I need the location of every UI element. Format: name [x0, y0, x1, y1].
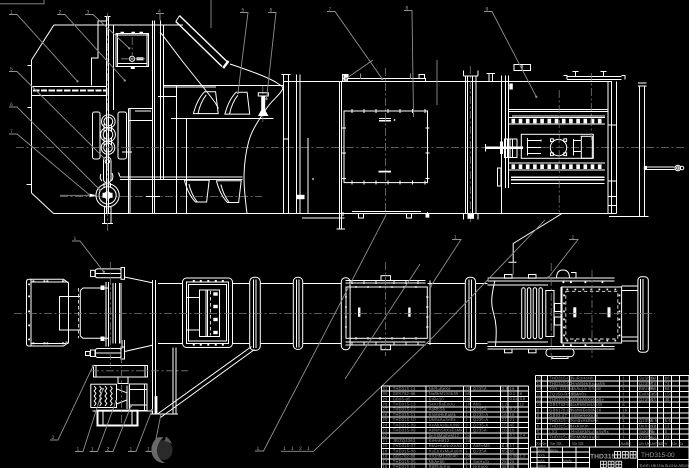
svg-text:HrKmXr: HrKmXr: [473, 464, 489, 468]
svg-text:RbUeKaNnXnA8: RbUeKaNnXnA8: [429, 443, 463, 448]
svg-text:THD315-04: THD315-04: [393, 464, 416, 468]
svg-text:15: 15: [537, 375, 542, 380]
svg-text:THD315-07: THD315-07: [393, 443, 416, 448]
svg-text:RsSb: RsSb: [537, 459, 545, 463]
svg-text:BbM8MsXaN8: BbM8MsXaN8: [571, 434, 600, 439]
svg-text:MsMk: MsMk: [563, 459, 572, 463]
svg-text:25: 25: [383, 417, 388, 422]
svg-text:Xm8xHkBsKn: Xm8xHkBsKn: [571, 418, 599, 423]
svg-text:THD315-03: THD315-03: [549, 375, 572, 380]
svg-text:THD315-01: THD315-01: [549, 397, 572, 402]
svg-text:S8Hr: S8Hr: [658, 441, 668, 446]
svg-text:SaNm: SaNm: [537, 464, 547, 468]
svg-text:0.1: 0.1: [510, 433, 515, 438]
svg-text:HnSkKkNuSaSsRx: HnSkKkNuSaSsRx: [571, 429, 609, 434]
svg-text:36: 36: [510, 464, 515, 468]
svg-text:88MeHeXn16: 88MeHeXn16: [571, 413, 599, 418]
svg-text:17: 17: [510, 443, 515, 448]
svg-text:THD315-17: THD315-17: [549, 418, 572, 423]
svg-text:20: 20: [383, 443, 388, 448]
svg-text:XnNe: XnNe: [536, 441, 547, 446]
svg-text:6.5: 6.5: [665, 418, 672, 423]
svg-text:Q235A: Q235A: [473, 428, 487, 433]
svg-text:Q235A: Q235A: [473, 386, 487, 391]
svg-text:AbEbAhKeNaBe: AbEbAhKeNaBe: [571, 397, 604, 402]
svg-text:16: 16: [383, 464, 388, 468]
svg-text:THD315-10: THD315-10: [393, 417, 416, 422]
svg-text:45: 45: [665, 397, 670, 402]
svg-text:6.5: 6.5: [651, 418, 658, 423]
svg-text:R8Eh8rKm: R8Eh8rKm: [429, 464, 451, 468]
svg-text:Sn S8: Sn S8: [572, 441, 584, 446]
svg-text:THD315-02: THD315-02: [549, 381, 572, 386]
svg-text:BbXu: BbXu: [550, 448, 558, 452]
svg-text:18: 18: [502, 428, 507, 433]
svg-text:22: 22: [665, 434, 670, 439]
svg-text:GB6170-86: GB6170-86: [549, 408, 572, 413]
svg-text:THD315-15: THD315-15: [549, 434, 572, 439]
svg-text:HxKbKm: HxKbKm: [571, 424, 589, 429]
svg-text:1.2: 1.2: [520, 454, 525, 459]
svg-text:60: 60: [651, 375, 656, 380]
svg-text:68: 68: [651, 386, 656, 391]
svg-text:12: 12: [537, 392, 542, 397]
svg-text:GB93-87: GB93-87: [549, 413, 567, 418]
svg-text:LX3: LX3: [549, 429, 557, 434]
svg-text:30: 30: [383, 391, 388, 396]
svg-text:THD315-08: THD315-08: [393, 428, 416, 433]
svg-text:13: 13: [537, 386, 542, 391]
svg-text:60: 60: [665, 375, 670, 380]
svg-text:HmMbHrKnAaNh: HmMbHrKnAaNh: [571, 381, 606, 386]
svg-text:12: 12: [665, 424, 670, 429]
svg-text:2.4: 2.4: [520, 433, 526, 438]
svg-text:0.01: 0.01: [510, 396, 518, 401]
svg-text:12: 12: [520, 401, 524, 406]
svg-text:74: 74: [665, 381, 670, 386]
svg-text:150: 150: [665, 392, 673, 397]
svg-text:HkKh: HkKh: [537, 448, 545, 452]
svg-text:A8EeM8: A8EeM8: [473, 443, 490, 448]
svg-text:12: 12: [651, 424, 656, 429]
svg-text:36: 36: [502, 464, 507, 468]
svg-text:10: 10: [537, 402, 542, 407]
svg-text:NuRsHeHh: NuRsHeHh: [571, 375, 594, 380]
svg-text:EkXh: EkXh: [537, 454, 545, 458]
svg-text:21: 21: [510, 417, 515, 422]
svg-text:Q235A: Q235A: [473, 449, 487, 454]
svg-text:65: 65: [502, 449, 507, 454]
svg-text:0.05: 0.05: [510, 454, 518, 459]
svg-text:NaBkM10Sb35: NaBkM10Sb35: [429, 391, 459, 396]
svg-text:11: 11: [537, 397, 542, 402]
svg-text:45: 45: [651, 397, 656, 402]
svg-text:Q235-A: Q235-A: [473, 417, 488, 422]
svg-text:150: 150: [651, 392, 659, 397]
svg-text:16: 16: [622, 408, 627, 413]
svg-text:14: 14: [537, 381, 542, 386]
svg-text:74: 74: [651, 381, 656, 386]
svg-text:ExHh Hb1Ha 8u1Ha A8Un1:10: ExHh Hb1Ha 8u1Ha A8Un1:10: [640, 463, 689, 468]
svg-text:XkAuUx 5.5kW: XkAuUx 5.5kW: [571, 386, 601, 391]
svg-text:R8 Rx: R8 Rx: [650, 437, 660, 441]
svg-text:NaN8Ee88M16: NaN8Ee88M16: [571, 408, 602, 413]
svg-text:THD315: THD315: [590, 454, 616, 461]
svg-text:SaRhM16Um55: SaRhM16Um55: [571, 402, 603, 407]
svg-text:GB5782-86: GB5782-86: [393, 391, 416, 396]
svg-text:68: 68: [665, 386, 670, 391]
svg-text:AaB8: AaB8: [621, 441, 632, 446]
svg-text:Un Ex: Un Ex: [672, 441, 684, 446]
svg-text:Se S8: Se S8: [550, 441, 562, 446]
svg-text:GB5782-86: GB5782-86: [549, 402, 572, 407]
svg-text:THD315-16: THD315-16: [549, 424, 572, 429]
svg-text:THD315-00: THD315-00: [641, 452, 675, 459]
svg-text:E8UrBs: E8UrBs: [571, 392, 586, 397]
svg-text:8.4: 8.4: [502, 443, 509, 448]
svg-text:80: 80: [465, 391, 470, 396]
svg-text:UhEaAuSnEk: UhEaAuSnEk: [429, 417, 457, 422]
svg-text:1.2: 1.2: [502, 401, 507, 406]
svg-text:0.8: 0.8: [502, 386, 509, 391]
svg-text:21: 21: [502, 417, 507, 422]
